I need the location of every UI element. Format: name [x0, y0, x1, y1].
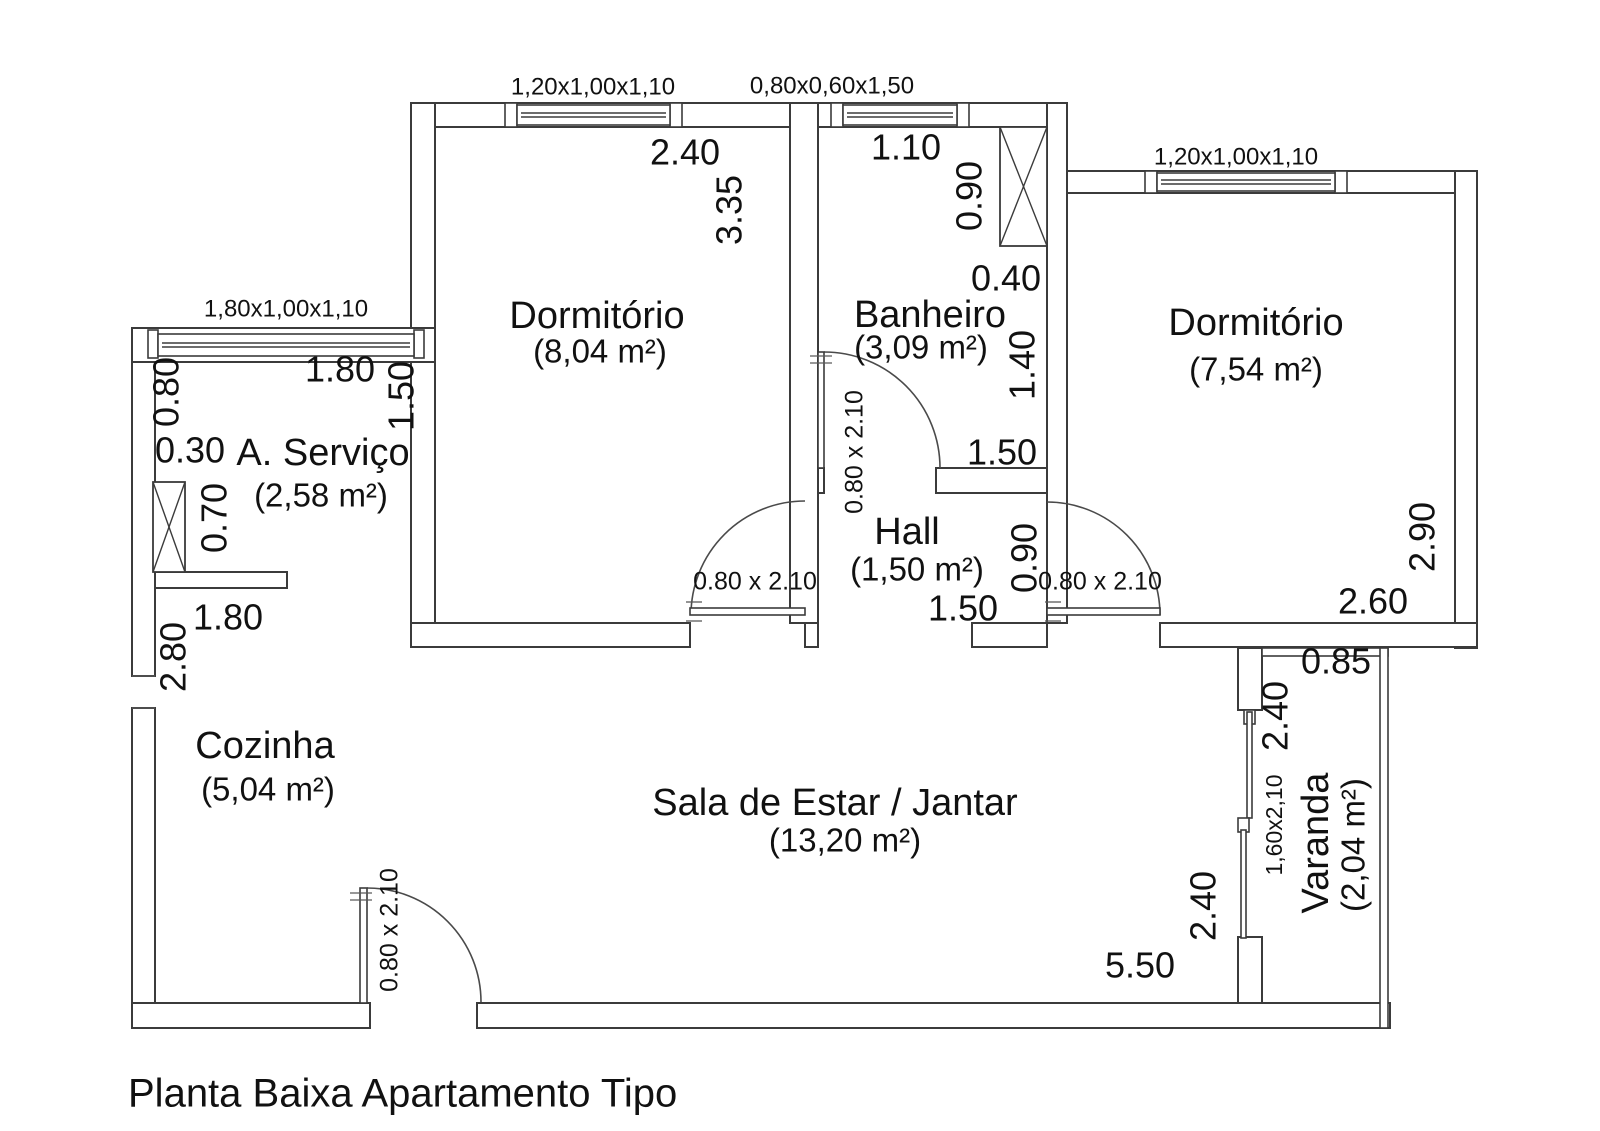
room-name-servico: A. Serviço [236, 432, 409, 474]
wall-servico-cozinha-step [155, 572, 287, 588]
room-area-hall: (1,50 m²) [850, 551, 984, 588]
dim-dorm1-width: 2.40 [650, 132, 720, 173]
dim-varanda-height: 2.40 [1255, 681, 1296, 751]
door-label-dorm2: 0.80 x 2.10 [1038, 568, 1162, 596]
wall-sala-varanda-lower [1238, 937, 1262, 1003]
wall-banheiro-right [1047, 103, 1067, 623]
dim-servico-right-height: 1.50 [381, 361, 422, 431]
dim-banheiro-width: 1.50 [967, 432, 1037, 473]
window-dorm1 [505, 103, 682, 127]
drawing-title: Planta Baixa Apartamento Tipo [128, 1072, 677, 1116]
dim-banheiro-lower-height: 1.40 [1002, 330, 1043, 400]
wall-bottom-left [132, 1003, 370, 1028]
walls-layer [132, 103, 1477, 1028]
room-area-varanda: (2,04 m²) [1335, 778, 1372, 912]
room-area-sala: (13,20 m²) [769, 822, 921, 859]
dim-sala-height: 2.40 [1183, 871, 1224, 941]
dim-servico-offset: 0.30 [155, 430, 225, 471]
door-dorm1 [686, 501, 805, 621]
wall-dorm2-right [1455, 171, 1477, 648]
door-entry [350, 888, 481, 1003]
floor-plan-drawing: 1,20x1,00x1,10 0,80x0,60x1,50 1,20x1,00x… [0, 0, 1600, 1131]
dim-dorm1-height: 3.35 [709, 175, 750, 245]
dim-dorm2-width: 2.60 [1338, 581, 1408, 622]
dim-cozinha-height: 2.80 [153, 622, 194, 692]
floor-plan-page: 1,20x1,00x1,10 0,80x0,60x1,50 1,20x1,00x… [0, 0, 1600, 1131]
wall-banheiro-bottom-stub [818, 468, 824, 493]
dim-servico-width: 1.80 [305, 349, 375, 390]
window-label-banheiro: 0,80x0,60x1,50 [750, 72, 914, 99]
dim-servico-shaft-height: 0.70 [194, 483, 235, 553]
window-label-servico: 1,80x1,00x1,10 [204, 295, 368, 322]
sliding-door-label: 1,60x2,10 [1261, 774, 1287, 875]
room-area-dorm1: (8,04 m²) [533, 333, 667, 370]
wall-varanda-right [1380, 648, 1388, 1028]
room-name-dorm2: Dormitório [1168, 302, 1343, 344]
duct-shaft-banheiro [1000, 127, 1047, 246]
room-area-servico: (2,58 m²) [254, 477, 388, 514]
dim-sala-width: 5.50 [1105, 945, 1175, 986]
window-dorm2 [1145, 171, 1347, 193]
room-area-cozinha: (5,04 m²) [201, 771, 335, 808]
dim-varanda-width: 0.85 [1301, 641, 1371, 682]
wall-bottom-right [477, 1003, 1390, 1028]
room-name-hall: Hall [874, 511, 939, 553]
door-label-banheiro: 0.80 x 2.10 [841, 390, 869, 514]
wall-hall-left-stub [805, 623, 818, 647]
window-label-dorm1: 1,20x1,00x1,10 [511, 73, 675, 100]
room-area-banheiro: (3,09 m²) [854, 329, 988, 366]
dim-hall-width: 1.50 [928, 588, 998, 629]
sliding-door-varanda [1238, 710, 1255, 938]
room-name-dorm1: Dormitório [509, 295, 684, 337]
wall-dorm1-bottom [411, 623, 690, 647]
room-name-sala: Sala de Estar / Jantar [652, 782, 1018, 824]
duct-shaft-servico [153, 482, 185, 572]
window-banheiro [831, 103, 969, 127]
door-label-entry: 0.80 x 2.10 [376, 868, 404, 992]
wall-left-lower [132, 708, 155, 1028]
dim-cozinha-width: 1.80 [193, 597, 263, 638]
dim-shaft-width: 0.40 [971, 258, 1041, 299]
door-banheiro [810, 352, 940, 468]
room-name-cozinha: Cozinha [195, 725, 335, 767]
dim-servico-left-height: 0.80 [146, 357, 187, 427]
window-servico [148, 330, 424, 358]
door-label-dorm1: 0.80 x 2.10 [693, 568, 817, 596]
dim-shaft-height: 0.90 [949, 161, 990, 231]
dim-dorm2-height: 2.90 [1402, 502, 1443, 572]
room-name-varanda: Varanda [1295, 772, 1337, 914]
dim-banheiro-top-width: 1.10 [871, 127, 941, 168]
window-label-dorm2: 1,20x1,00x1,10 [1154, 143, 1318, 170]
room-area-dorm2: (7,54 m²) [1189, 351, 1323, 388]
